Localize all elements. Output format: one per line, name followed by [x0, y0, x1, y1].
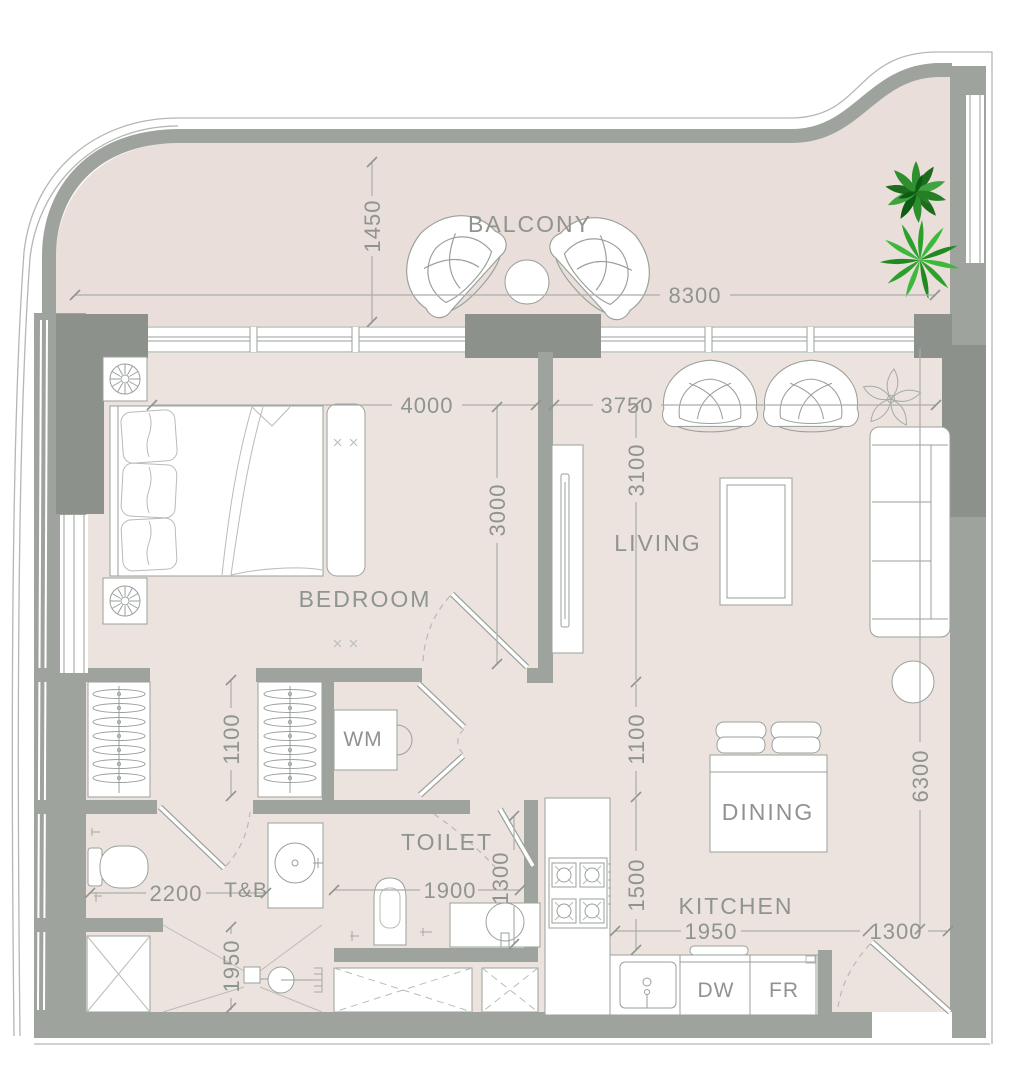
bedroom-window — [60, 515, 88, 673]
fridge-label: FR — [769, 979, 799, 1002]
dim-wardrobe-aisle: 1100 — [219, 713, 244, 764]
side-table-round — [892, 661, 934, 703]
duct-bottom-2 — [482, 968, 538, 1012]
room-label-balcony: BALCONY — [468, 211, 592, 237]
dim-kitchen-depth: 1500 — [624, 859, 649, 912]
pier-left — [56, 314, 148, 358]
dim-side-total-depth: 6300 — [908, 750, 933, 803]
dim-tnb-width: 2200 — [150, 881, 203, 906]
wall-tnb-lower — [34, 918, 163, 932]
dim-balcony-width: 8300 — [669, 283, 722, 308]
wall-tnb-top-right — [253, 800, 334, 814]
dim-entry-width: 1300 — [870, 919, 923, 944]
tnb-toilet — [88, 846, 148, 888]
dim-bedroom-depth: 3000 — [485, 484, 510, 537]
dim-shower-depth: 1950 — [219, 940, 244, 993]
dim-balcony-depth: 1450 — [360, 200, 385, 253]
dim-hall-depth: 1100 — [624, 713, 649, 764]
bottom-wall — [34, 1012, 872, 1038]
wall-entry-stub — [818, 950, 832, 1012]
stove — [549, 858, 611, 928]
dim-toilet-depth: 1300 — [488, 852, 513, 905]
duct-left — [87, 936, 150, 1012]
room-label-living: LIVING — [614, 530, 701, 556]
balcony-table — [505, 260, 549, 304]
wall-bedroom-south-left — [34, 668, 150, 682]
room-label-toilet: TOILET — [401, 829, 493, 855]
floor-plan-page: DW FR — [0, 0, 1024, 1080]
right-window — [966, 95, 984, 263]
counter-hob-edge — [690, 946, 748, 955]
wall-wm-top — [334, 668, 422, 682]
coffee-table — [720, 478, 792, 605]
bottom-wall-entry-corner — [952, 1012, 986, 1038]
dim-living-width: 3750 — [601, 393, 654, 418]
floor-plan: DW FR — [0, 0, 1024, 1080]
room-label-tnb: T&B — [224, 879, 268, 902]
sofa — [870, 427, 950, 637]
wall-tnb-top-left — [34, 800, 157, 814]
toilet-vanity — [450, 903, 540, 947]
dim-toilet-width: 1900 — [424, 878, 477, 903]
kitchen-sink — [620, 962, 676, 1008]
room-label-kitchen: KITCHEN — [679, 893, 794, 919]
dim-living-depth: 3100 — [624, 444, 649, 497]
dim-kitchen-width: 1950 — [685, 919, 738, 944]
duct-bottom-1 — [334, 968, 472, 1012]
wall-bedroom-living — [538, 352, 553, 668]
tv-unit — [552, 445, 583, 653]
room-label-dining: DINING — [722, 799, 815, 825]
bed-bench — [327, 404, 365, 576]
wm-label: WM — [343, 728, 382, 751]
wall-bedroom-living-stub — [527, 668, 553, 683]
room-label-bedroom: BEDROOM — [299, 586, 432, 612]
dim-bedroom-width: 4000 — [401, 393, 454, 418]
bed — [110, 406, 323, 576]
wall-toilet-bottom — [334, 948, 538, 962]
wall-wardrobe-divider — [322, 668, 334, 814]
shower-drain — [244, 967, 260, 983]
wall-toilet-top — [334, 800, 470, 814]
pier-middle — [465, 314, 601, 358]
dishwasher-label: DW — [698, 979, 735, 1002]
